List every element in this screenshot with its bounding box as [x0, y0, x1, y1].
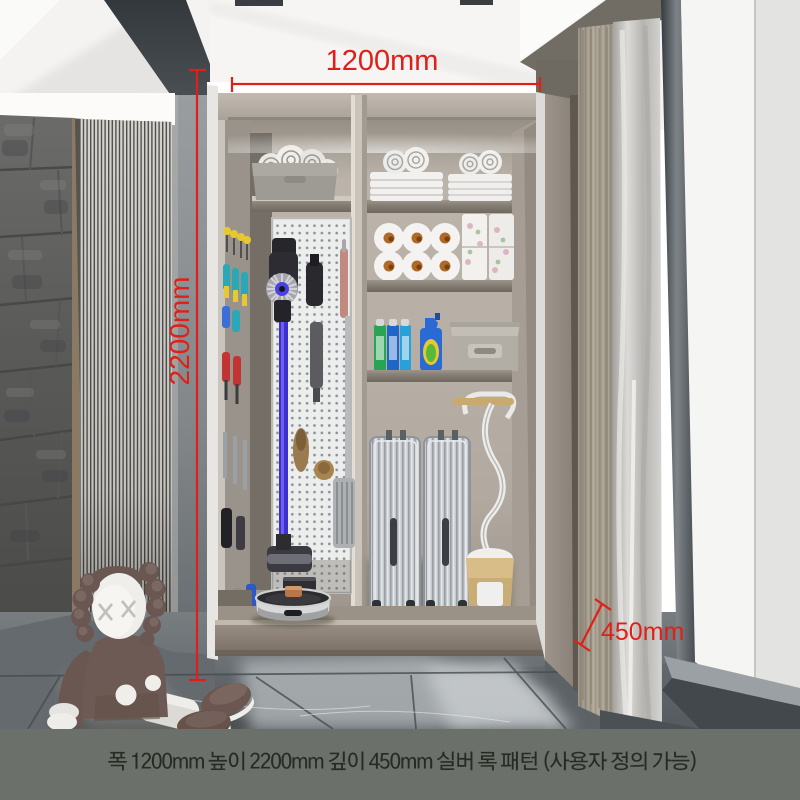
svg-text:450mm: 450mm	[601, 618, 684, 646]
svg-text:1200mm: 1200mm	[326, 45, 439, 77]
svg-text:2200mm: 2200mm	[164, 277, 195, 386]
